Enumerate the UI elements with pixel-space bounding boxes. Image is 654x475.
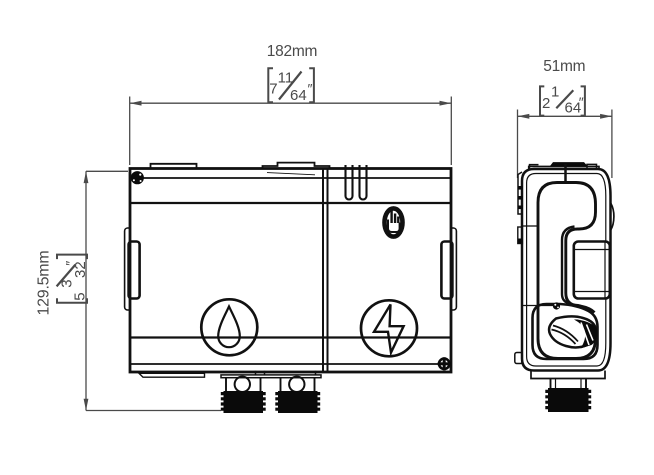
svg-text:182mm: 182mm	[267, 43, 317, 60]
svg-text:″: ″	[62, 261, 78, 266]
svg-text:″: ″	[308, 81, 313, 97]
svg-text:″: ″	[579, 94, 584, 110]
svg-text:51mm: 51mm	[543, 58, 585, 75]
svg-text:2: 2	[542, 95, 550, 112]
svg-text:1: 1	[551, 84, 559, 101]
svg-text:64: 64	[290, 87, 307, 104]
svg-text:7: 7	[269, 81, 277, 98]
svg-text:129.5mm: 129.5mm	[36, 251, 53, 316]
